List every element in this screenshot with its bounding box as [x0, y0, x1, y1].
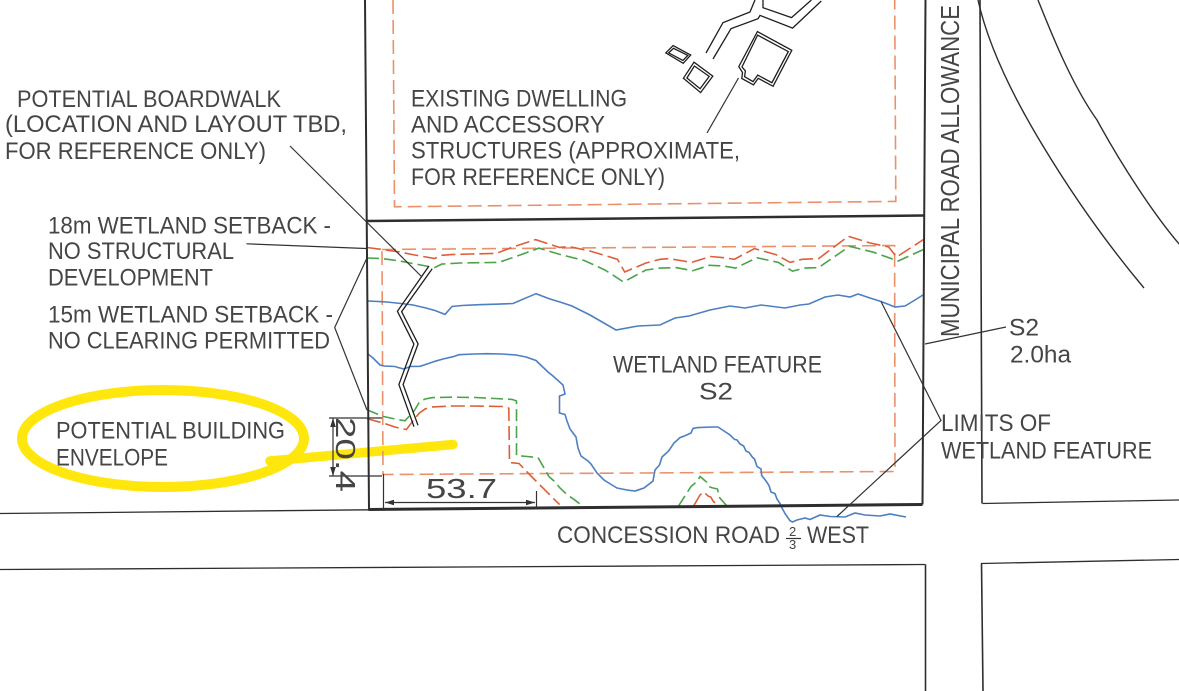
svg-text:CONCESSION ROAD: CONCESSION ROAD	[557, 522, 780, 549]
svg-text:S2: S2	[699, 379, 733, 406]
svg-text:STRUCTURES (APPROXIMATE,: STRUCTURES (APPROXIMATE,	[411, 138, 740, 165]
svg-text:S2: S2	[1009, 315, 1039, 342]
svg-text:FOR REFERENCE ONLY): FOR REFERENCE ONLY)	[411, 164, 665, 191]
svg-text:POTENTIAL BOARDWALK: POTENTIAL BOARDWALK	[17, 86, 281, 113]
svg-text:MUNICIPAL ROAD ALLOWANCE: MUNICIPAL ROAD ALLOWANCE	[935, 5, 965, 337]
svg-text:LIMITS OF: LIMITS OF	[941, 410, 1051, 437]
svg-text:EXISTING DWELLING: EXISTING DWELLING	[411, 86, 627, 113]
svg-text:3: 3	[789, 537, 796, 552]
svg-text:20.4: 20.4	[330, 417, 361, 492]
svg-text:ENVELOPE: ENVELOPE	[56, 445, 168, 472]
svg-text:DEVELOPMENT: DEVELOPMENT	[48, 265, 213, 292]
svg-text:15m WETLAND SETBACK -: 15m WETLAND SETBACK -	[48, 302, 333, 329]
svg-text:AND ACCESSORY: AND ACCESSORY	[411, 112, 605, 139]
svg-text:(LOCATION AND LAYOUT TBD,: (LOCATION AND LAYOUT TBD,	[5, 111, 347, 138]
svg-text:POTENTIAL BUILDING: POTENTIAL BUILDING	[56, 418, 285, 445]
svg-text:FOR REFERENCE ONLY): FOR REFERENCE ONLY)	[5, 138, 266, 165]
svg-text:NO CLEARING PERMITTED: NO CLEARING PERMITTED	[48, 328, 330, 355]
svg-text:WEST: WEST	[807, 522, 869, 549]
svg-text:18m WETLAND SETBACK -: 18m WETLAND SETBACK -	[48, 213, 331, 240]
svg-text:NO STRUCTURAL: NO STRUCTURAL	[48, 238, 234, 265]
svg-text:WETLAND FEATURE: WETLAND FEATURE	[613, 352, 822, 379]
svg-text:WETLAND FEATURE: WETLAND FEATURE	[941, 438, 1152, 465]
svg-text:53.7: 53.7	[426, 473, 497, 504]
svg-text:2.0ha: 2.0ha	[1010, 342, 1072, 369]
